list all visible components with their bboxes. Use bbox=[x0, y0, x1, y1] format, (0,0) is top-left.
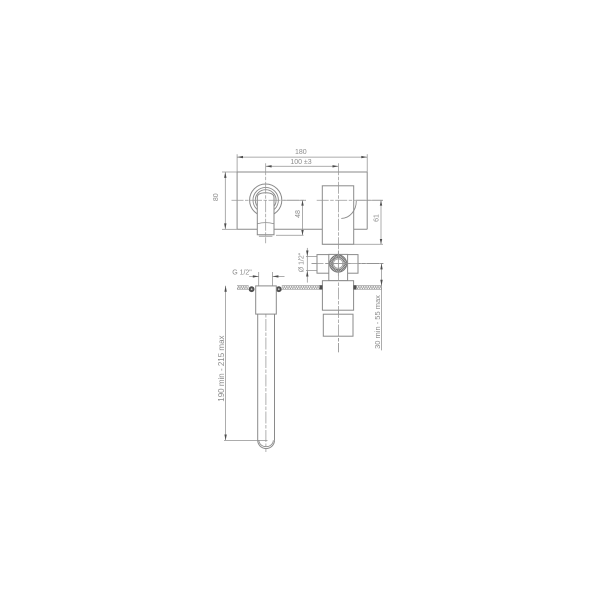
svg-text:Ø 1/2": Ø 1/2" bbox=[298, 252, 305, 272]
svg-text:G 1/2": G 1/2" bbox=[232, 269, 252, 276]
svg-text:80: 80 bbox=[213, 193, 220, 201]
svg-text:61: 61 bbox=[374, 214, 381, 222]
svg-text:48: 48 bbox=[295, 210, 302, 218]
svg-text:100 ±3: 100 ±3 bbox=[290, 159, 311, 166]
svg-text:190 min - 215 max: 190 min - 215 max bbox=[217, 335, 226, 401]
svg-text:30 min - 55 max: 30 min - 55 max bbox=[373, 295, 382, 349]
svg-text:180: 180 bbox=[295, 149, 307, 156]
